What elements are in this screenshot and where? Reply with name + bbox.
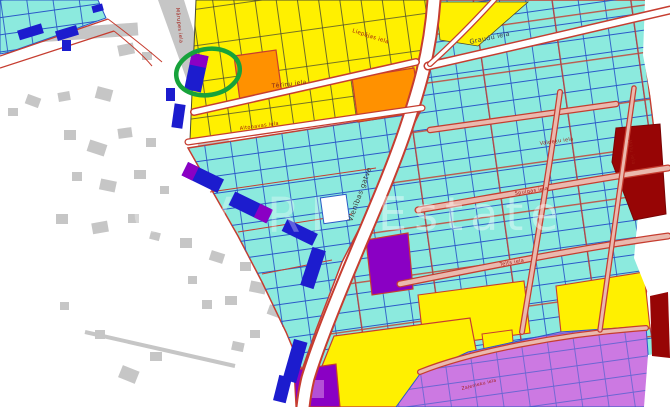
white-margin-bottom [644,352,670,407]
darkred-parcel-bottom [650,292,670,358]
watermark-left-text: CiV RI [132,188,334,244]
watermark-right-text: Estate [378,187,566,241]
zoning-map: CiV RI Estate Vienības gatve Tēriņu iela… [0,0,670,407]
map-canvas: CiV RI Estate Vienības gatve Tēriņu iela… [0,0,670,407]
